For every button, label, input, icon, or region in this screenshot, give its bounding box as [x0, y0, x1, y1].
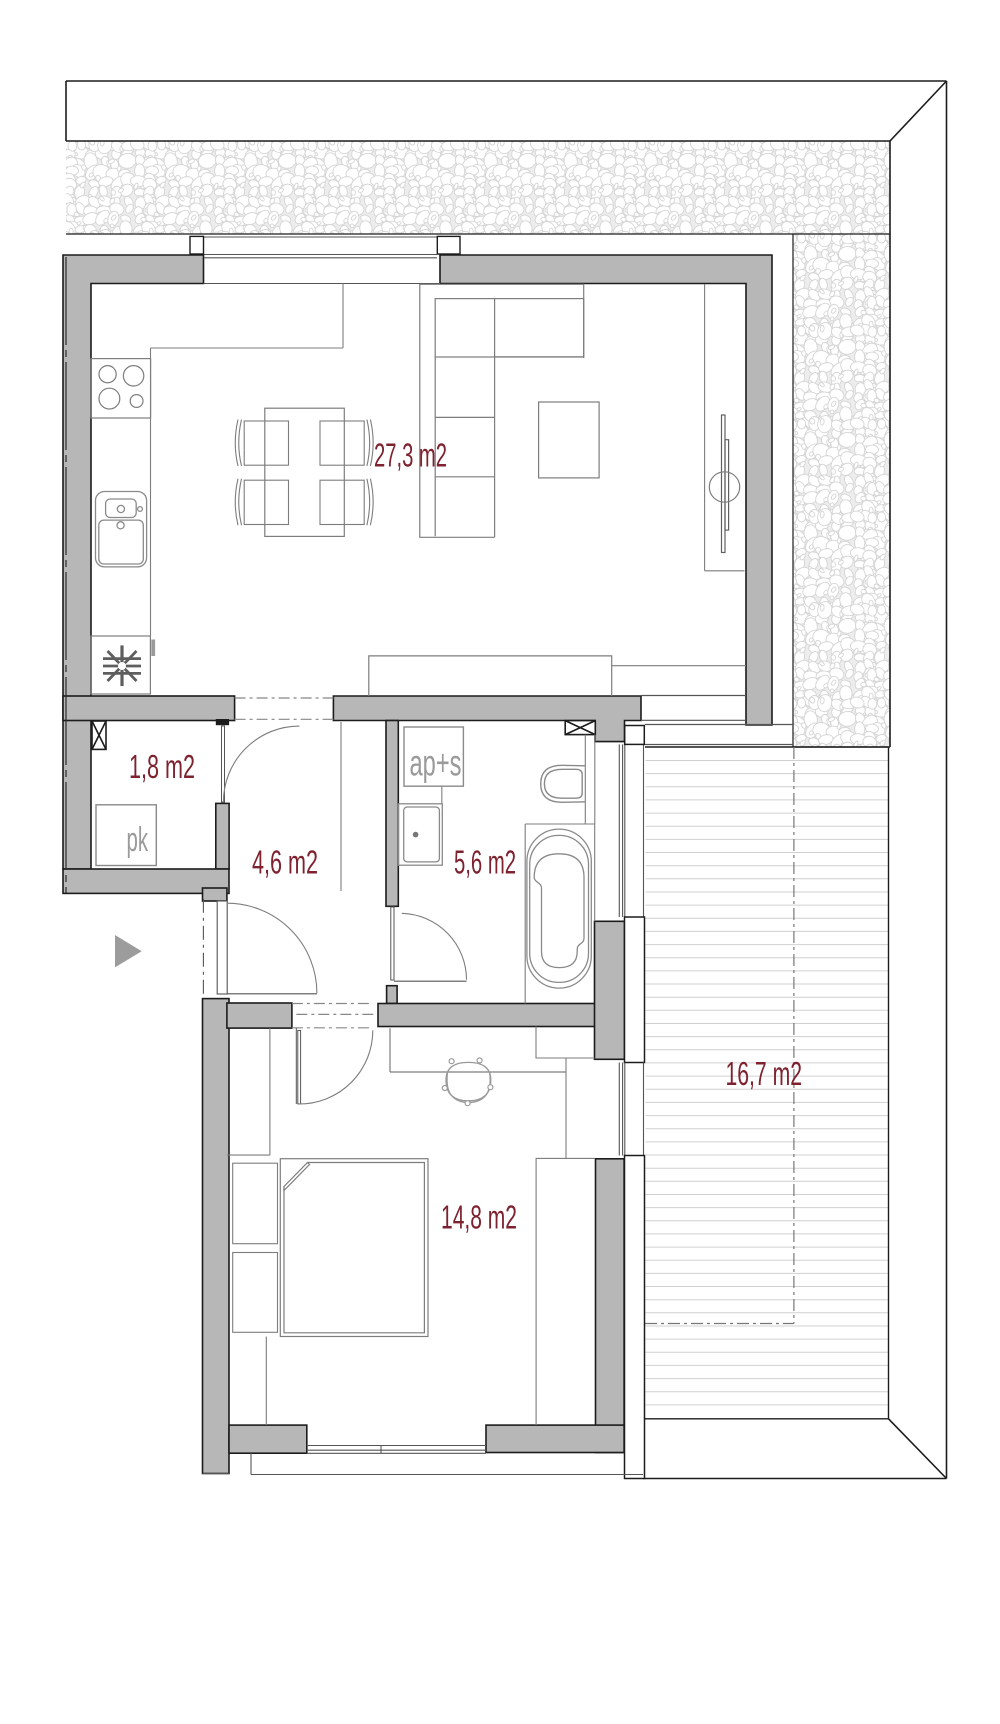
svg-text:pk: pk — [127, 821, 149, 859]
svg-text:5,6 m2: 5,6 m2 — [454, 844, 516, 881]
svg-text:14,8 m2: 14,8 m2 — [441, 1199, 517, 1236]
svg-text:1,8 m2: 1,8 m2 — [129, 748, 195, 785]
svg-text:16,7 m2: 16,7 m2 — [726, 1055, 803, 1092]
svg-text:ap+s: ap+s — [410, 743, 462, 784]
svg-text:4,6 m2: 4,6 m2 — [252, 844, 318, 881]
svg-text:27,3 m2: 27,3 m2 — [374, 437, 447, 474]
